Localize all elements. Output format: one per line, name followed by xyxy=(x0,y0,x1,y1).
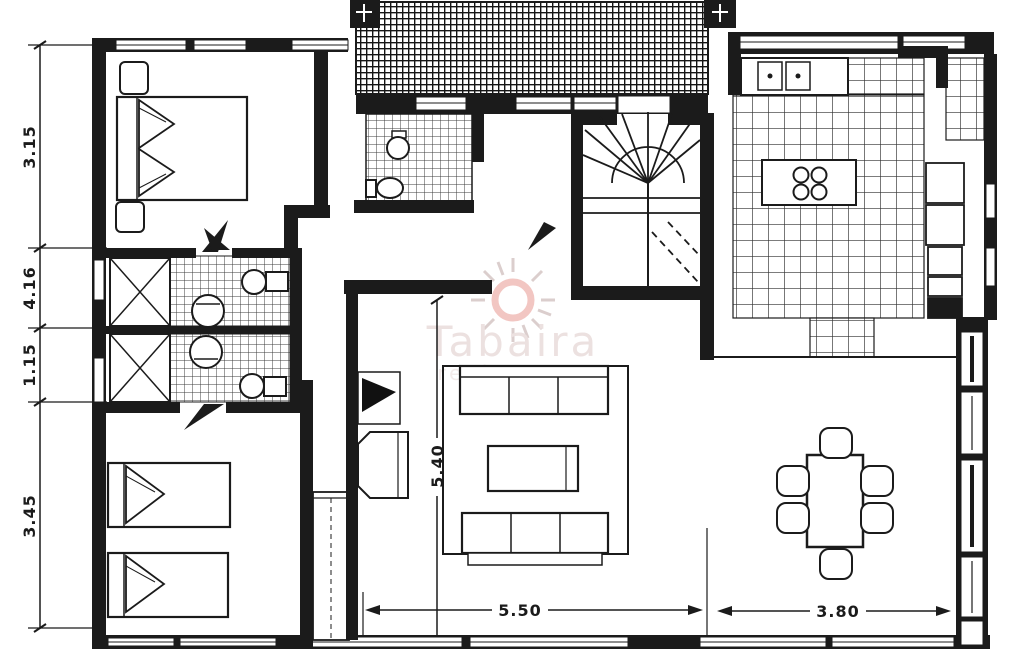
dimension-label-5-40: 5.40 xyxy=(428,444,447,487)
terrace-wall-windows xyxy=(416,96,670,113)
dining-table xyxy=(807,455,863,547)
bedroom1-south-wall xyxy=(284,218,298,250)
living-left-wall xyxy=(346,294,358,640)
toilet-icon xyxy=(242,270,266,294)
dimension-label-5-50: 5.50 xyxy=(498,601,541,620)
nightstand xyxy=(120,62,148,94)
toilet-tank xyxy=(264,377,286,396)
bathroom-wall xyxy=(354,200,474,213)
kitchen xyxy=(714,32,997,357)
dining-area xyxy=(777,317,988,648)
appliance xyxy=(928,247,962,275)
dining-chair xyxy=(861,466,893,496)
dining-chair xyxy=(777,466,809,496)
washbasin-icon xyxy=(387,137,409,159)
bathroom-wall xyxy=(472,114,484,162)
bedroom-1 xyxy=(116,52,330,252)
dimension-label-3-45: 3.45 xyxy=(20,494,39,537)
dimension-label-1-15: 1.15 xyxy=(20,343,39,386)
sideboard xyxy=(358,432,408,498)
toilet-tank xyxy=(366,180,376,197)
bedroom1-right-wall xyxy=(314,52,328,208)
left-wall-window xyxy=(94,260,104,300)
top-wall-windows xyxy=(116,40,348,50)
washbasin-icon xyxy=(190,336,222,368)
dimension-label-3-80: 3.80 xyxy=(816,602,859,621)
terrace xyxy=(350,0,736,114)
kitchen-tiles xyxy=(946,58,984,140)
kitchen-tiles xyxy=(810,318,874,357)
kitchen-appliances xyxy=(926,163,964,318)
stairs-treads xyxy=(583,112,700,286)
floor-plan-drawing: Tabaira real estate 3.15 4.16 1.15 3.45 … xyxy=(0,0,1023,650)
dimension-label-4-16: 4.16 xyxy=(20,266,39,309)
bedroom-2 xyxy=(108,380,349,648)
dining-chair xyxy=(861,503,893,533)
sofa xyxy=(462,513,608,565)
coffee-table xyxy=(488,446,578,491)
dining-right-windows xyxy=(961,332,983,645)
kitchen-tiles xyxy=(848,58,924,94)
bedroom1-south-wall xyxy=(284,205,330,218)
dining-chair xyxy=(820,549,852,579)
door-leaf xyxy=(528,222,556,250)
hall-wall xyxy=(344,280,492,294)
fridge xyxy=(926,163,964,203)
left-wall xyxy=(92,38,106,649)
terrace-tiles xyxy=(356,2,708,94)
door-leaf xyxy=(184,404,224,430)
toilet-tank xyxy=(266,272,288,291)
bedroom2-right-wall xyxy=(300,380,313,648)
kitchen-tiles xyxy=(733,95,924,318)
sofa xyxy=(460,366,608,414)
bathroom-block xyxy=(106,228,302,430)
toilet-icon xyxy=(377,178,403,198)
dining-chair xyxy=(777,503,809,533)
appliance xyxy=(928,277,962,296)
bathroom-ensuite xyxy=(354,114,556,250)
left-wall-window xyxy=(94,358,104,402)
dining-chair xyxy=(820,428,852,458)
toilet-icon xyxy=(240,374,264,398)
nightstand xyxy=(116,202,144,232)
floor-plan: Tabaira real estate 3.15 4.16 1.15 3.45 … xyxy=(0,0,1023,650)
dimension-label-3-15: 3.15 xyxy=(20,125,39,168)
stove-counter xyxy=(762,160,856,205)
appliance xyxy=(926,205,964,245)
watermark-brand: Tabaira xyxy=(426,317,600,366)
washbasin-icon xyxy=(192,295,224,327)
appliance-dark xyxy=(928,298,962,318)
